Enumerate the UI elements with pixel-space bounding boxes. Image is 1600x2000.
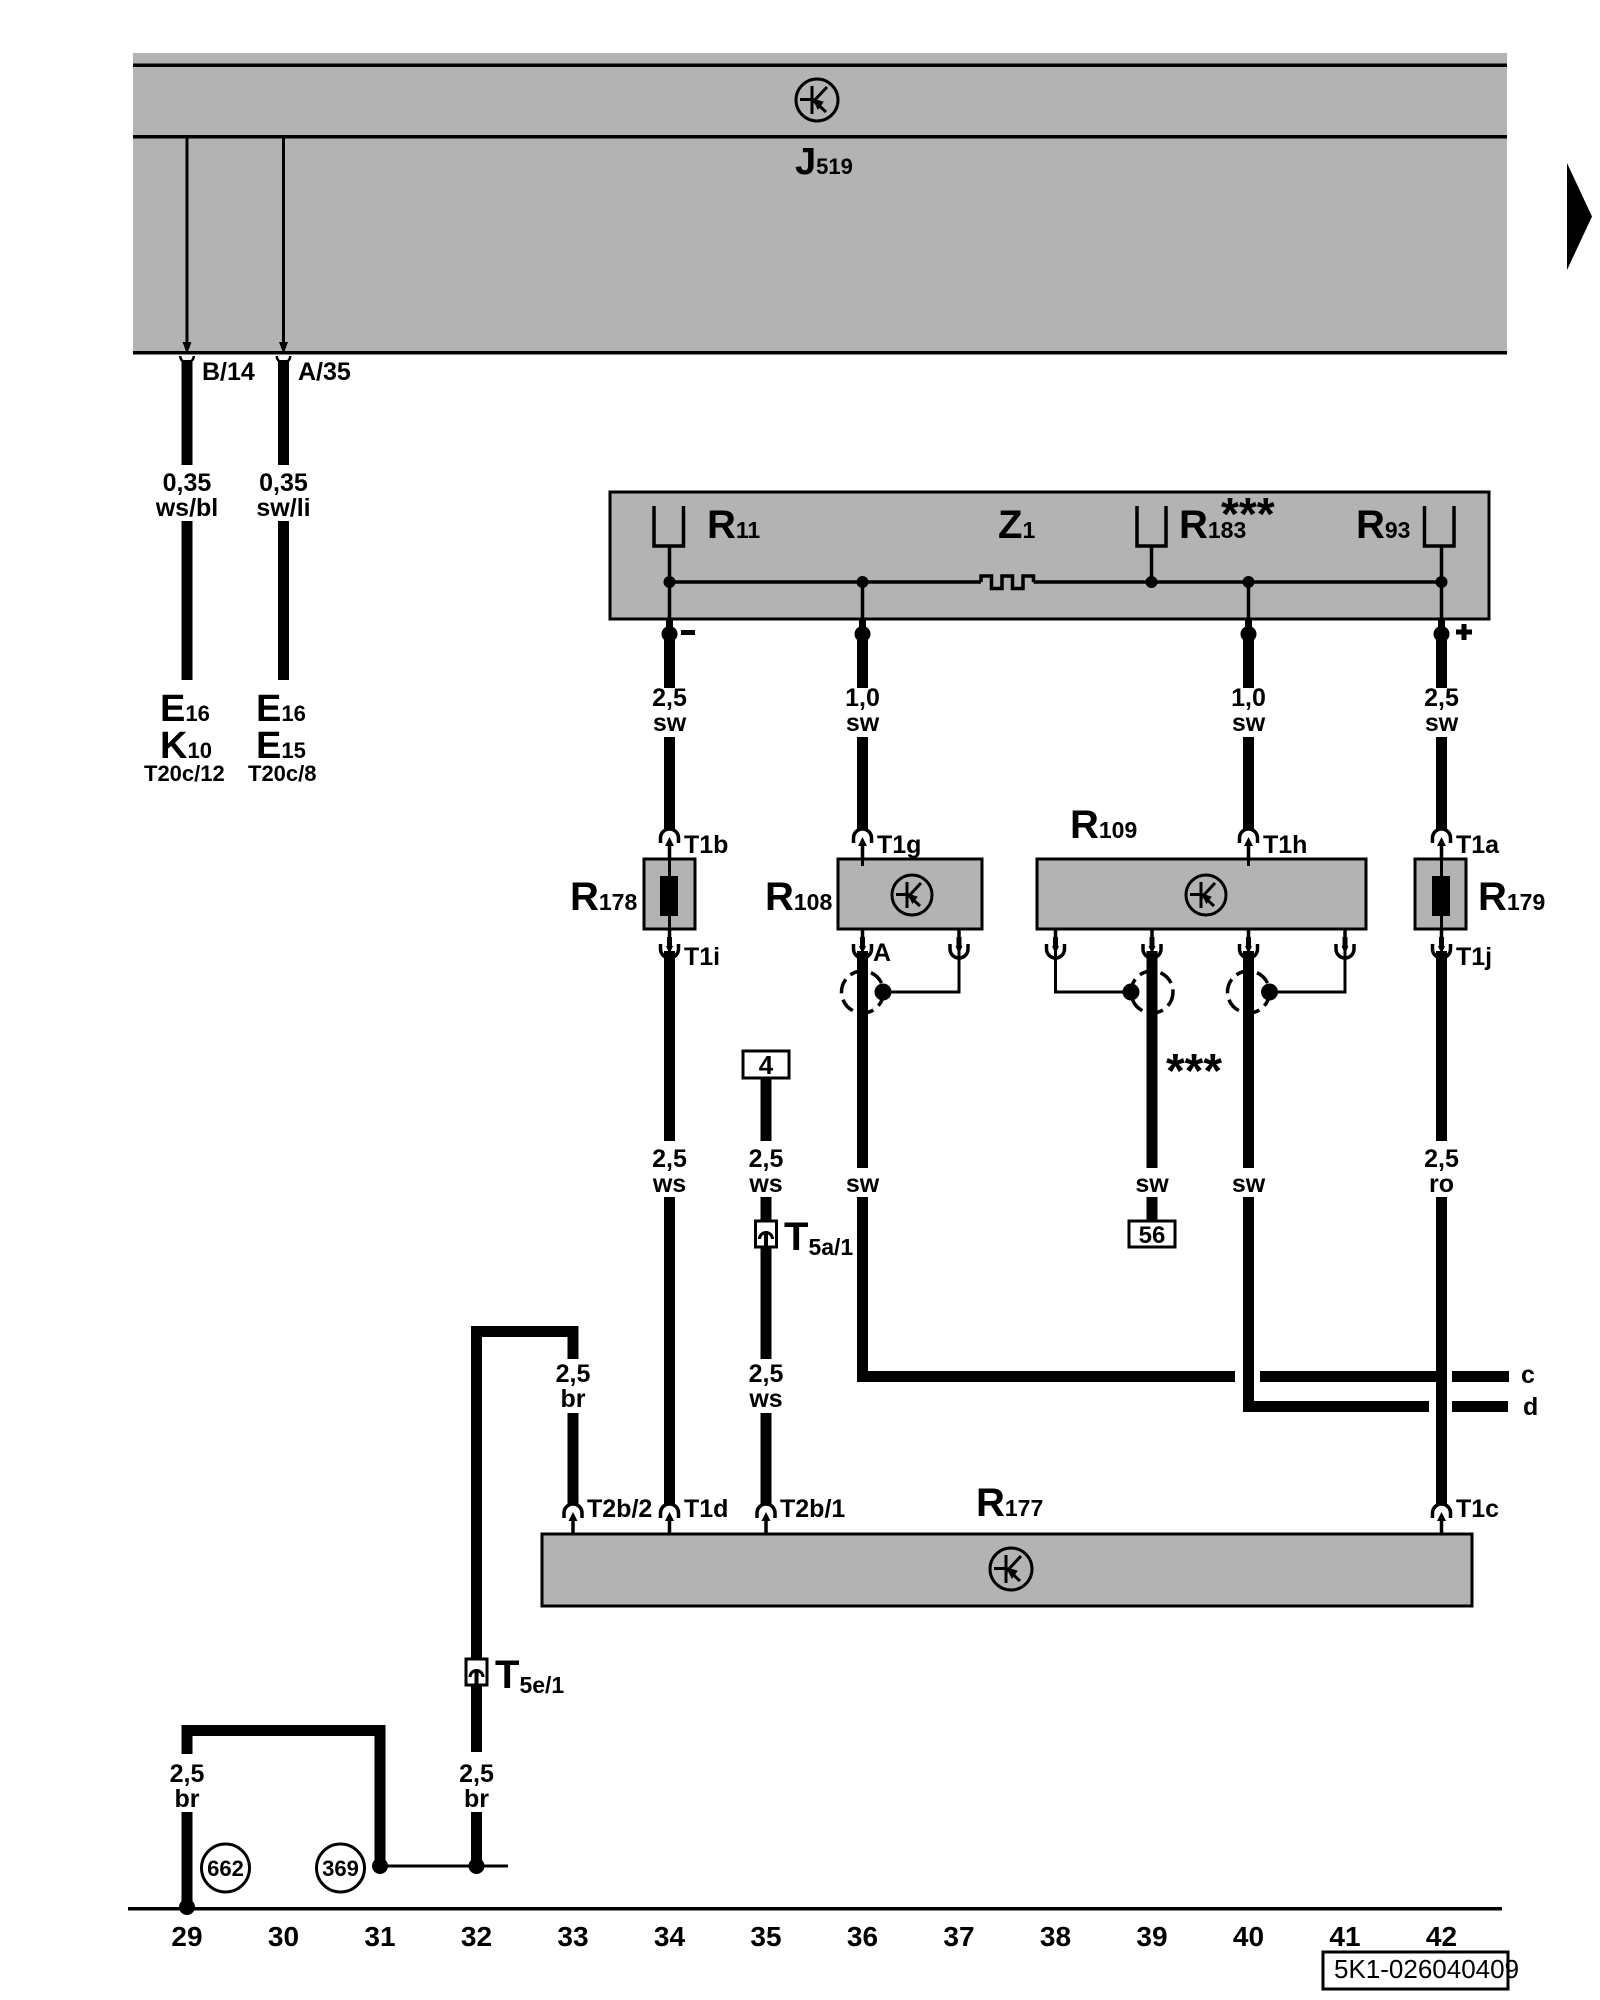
svg-text:ws: ws xyxy=(748,1385,782,1413)
svg-text:4: 4 xyxy=(759,1050,774,1080)
svg-text:34: 34 xyxy=(654,1921,686,1952)
svg-text:***: *** xyxy=(1221,488,1275,540)
svg-text:5K1-026040409: 5K1-026040409 xyxy=(1334,1954,1519,1984)
svg-text:T2b/2: T2b/2 xyxy=(587,1495,652,1523)
svg-text:40: 40 xyxy=(1233,1921,1264,1952)
svg-text:56: 56 xyxy=(1139,1222,1166,1249)
svg-text:2,5: 2,5 xyxy=(459,1760,494,1788)
svg-text:39: 39 xyxy=(1136,1921,1167,1952)
svg-text:br: br xyxy=(561,1385,586,1413)
svg-text:B/14: B/14 xyxy=(202,358,255,386)
svg-text:T20c/8: T20c/8 xyxy=(248,761,317,786)
svg-text:A: A xyxy=(873,939,891,967)
svg-text:A/35: A/35 xyxy=(298,358,351,386)
svg-text:c: c xyxy=(1521,1361,1535,1389)
svg-text:369: 369 xyxy=(322,1856,359,1881)
svg-text:33: 33 xyxy=(557,1921,588,1952)
svg-text:31: 31 xyxy=(364,1921,395,1952)
svg-text:0,35: 0,35 xyxy=(259,469,308,497)
svg-text:T1j: T1j xyxy=(1456,943,1492,971)
svg-text:T1a: T1a xyxy=(1456,831,1500,859)
svg-text:36: 36 xyxy=(847,1921,878,1952)
svg-text:1,0: 1,0 xyxy=(1231,684,1266,712)
svg-text:662: 662 xyxy=(207,1856,244,1881)
svg-text:32: 32 xyxy=(461,1921,492,1952)
svg-text:sw: sw xyxy=(1232,709,1266,737)
svg-text:41: 41 xyxy=(1329,1921,1360,1952)
svg-text:d: d xyxy=(1523,1393,1538,1421)
svg-text:T1i: T1i xyxy=(684,943,720,971)
svg-text:br: br xyxy=(175,1785,200,1813)
svg-text:sw: sw xyxy=(846,1170,880,1198)
svg-text:sw: sw xyxy=(1232,1170,1266,1198)
svg-text:2,5: 2,5 xyxy=(556,1360,591,1388)
svg-text:sw: sw xyxy=(1425,709,1459,737)
svg-text:T1b: T1b xyxy=(684,831,728,859)
svg-text:0,35: 0,35 xyxy=(163,469,212,497)
svg-text:ws/bl: ws/bl xyxy=(155,494,219,522)
svg-text:***: *** xyxy=(1166,1045,1222,1098)
svg-text:2,5: 2,5 xyxy=(1424,684,1459,712)
svg-text:2,5: 2,5 xyxy=(749,1145,784,1173)
svg-text:ws: ws xyxy=(748,1170,782,1198)
svg-text:ro: ro xyxy=(1429,1170,1454,1198)
svg-text:sw: sw xyxy=(846,709,880,737)
svg-text:35: 35 xyxy=(750,1921,781,1952)
svg-text:T1h: T1h xyxy=(1263,831,1307,859)
svg-text:37: 37 xyxy=(943,1921,974,1952)
svg-text:ws: ws xyxy=(652,1170,686,1198)
svg-text:2,5: 2,5 xyxy=(749,1360,784,1388)
svg-text:2,5: 2,5 xyxy=(652,684,687,712)
svg-text:T2b/1: T2b/1 xyxy=(780,1495,845,1523)
svg-text:T1d: T1d xyxy=(684,1495,728,1523)
svg-text:2,5: 2,5 xyxy=(1424,1145,1459,1173)
svg-text:br: br xyxy=(464,1785,489,1813)
svg-text:sw/li: sw/li xyxy=(256,494,310,522)
svg-text:42: 42 xyxy=(1426,1921,1457,1952)
svg-text:2,5: 2,5 xyxy=(652,1145,687,1173)
svg-text:1,0: 1,0 xyxy=(845,684,880,712)
svg-text:38: 38 xyxy=(1040,1921,1071,1952)
svg-text:sw: sw xyxy=(1135,1170,1169,1198)
svg-text:2,5: 2,5 xyxy=(170,1760,205,1788)
svg-text:T20c/12: T20c/12 xyxy=(144,761,225,786)
svg-text:30: 30 xyxy=(268,1921,299,1952)
svg-text:29: 29 xyxy=(171,1921,202,1952)
svg-text:T1c: T1c xyxy=(1456,1495,1499,1523)
svg-text:sw: sw xyxy=(653,709,687,737)
svg-text:T1g: T1g xyxy=(877,831,921,859)
